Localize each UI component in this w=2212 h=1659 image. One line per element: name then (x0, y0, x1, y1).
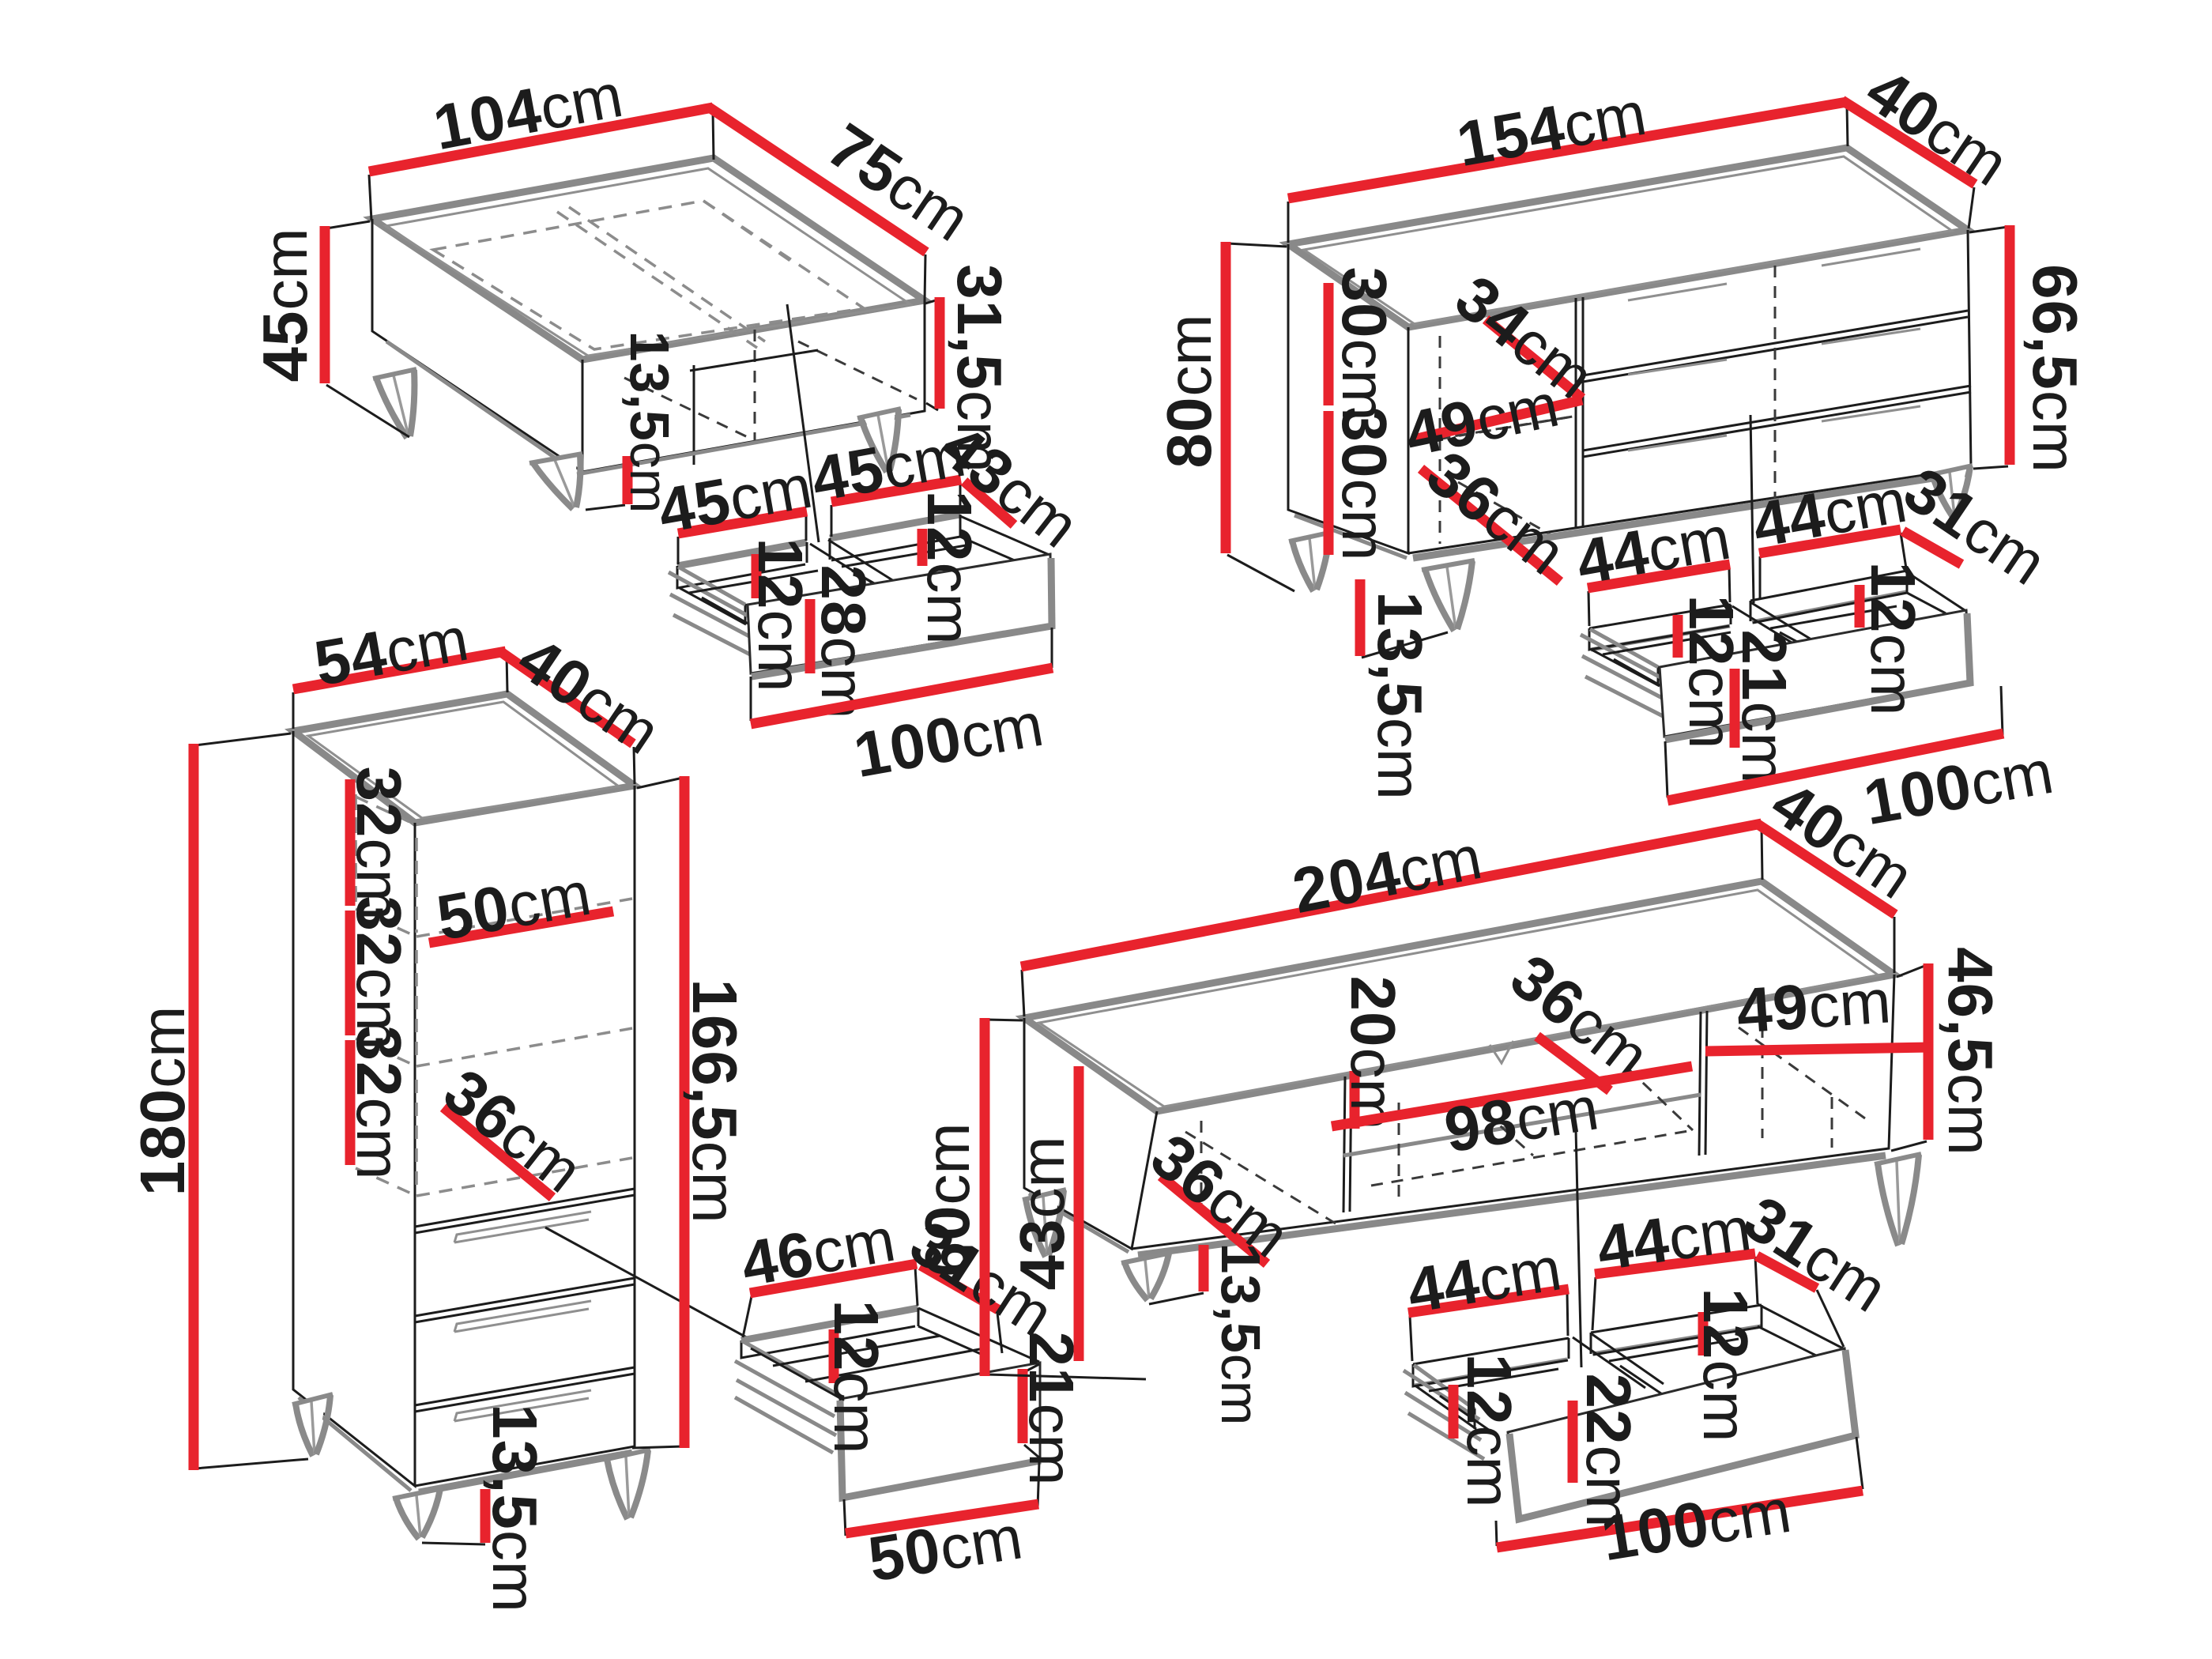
svg-text:30cm: 30cm (1329, 407, 1400, 561)
svg-text:49cm: 49cm (1735, 965, 1894, 1046)
svg-text:43cm: 43cm (1007, 1137, 1077, 1291)
svg-text:28cm: 28cm (808, 565, 879, 719)
svg-text:30cm: 30cm (1329, 267, 1400, 421)
svg-text:12cm: 12cm (914, 491, 985, 645)
svg-text:12cm: 12cm (1858, 562, 1928, 716)
svg-text:180cm: 180cm (127, 1006, 198, 1196)
svg-text:32cm: 32cm (344, 1026, 414, 1180)
svg-text:12cm: 12cm (821, 1300, 891, 1454)
svg-text:13,5cm: 13,5cm (1210, 1243, 1272, 1426)
svg-text:66,5cm: 66,5cm (2020, 264, 2090, 473)
svg-text:46,5cm: 46,5cm (1935, 947, 2006, 1156)
svg-text:45cm: 45cm (250, 228, 320, 383)
svg-text:12cm: 12cm (1454, 1354, 1524, 1508)
svg-text:80cm: 80cm (1154, 315, 1224, 469)
svg-text:166,5cm: 166,5cm (680, 978, 750, 1223)
svg-text:13,5cm: 13,5cm (1365, 591, 1435, 800)
svg-text:21cm: 21cm (1729, 630, 1799, 784)
svg-text:13,5cm: 13,5cm (480, 1404, 550, 1612)
svg-text:12cm: 12cm (1690, 1288, 1761, 1442)
svg-text:60cm: 60cm (912, 1123, 982, 1277)
svg-text:20cm: 20cm (1338, 976, 1408, 1130)
